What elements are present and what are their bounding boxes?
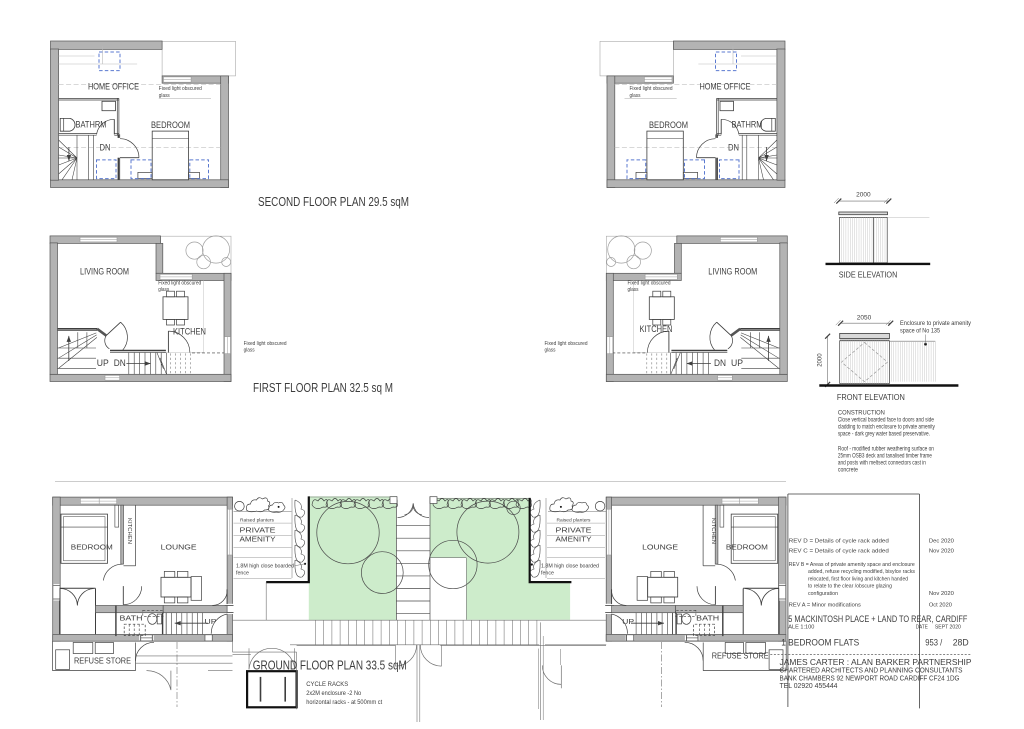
svg-text:space of No 135: space of No 135	[900, 329, 941, 335]
svg-text:Nov 2020: Nov 2020	[929, 549, 954, 555]
svg-text:BATH: BATH	[120, 613, 143, 622]
svg-text:2050: 2050	[857, 315, 872, 322]
svg-text:relocated, first floor living: relocated, first floor living and kitche…	[808, 576, 908, 582]
svg-text:Fixed light obscured: Fixed light obscured	[628, 280, 671, 286]
svg-text:UP: UP	[731, 358, 743, 368]
svg-text:Dec 2020: Dec 2020	[929, 538, 954, 544]
svg-text:HOME OFFICE: HOME OFFICE	[88, 82, 139, 92]
svg-text:Fixed light obscured: Fixed light obscured	[244, 341, 287, 347]
svg-text:REV B = Areas of private ameni: REV B = Areas of private amenity space a…	[789, 562, 915, 568]
svg-text:BEDROOM: BEDROOM	[151, 120, 190, 130]
svg-text:BEDROOM: BEDROOM	[726, 543, 768, 552]
svg-text:Fixed light obscured: Fixed light obscured	[630, 86, 673, 92]
svg-text:to relate to the clear /obscur: to relate to the clear /obscure glazing	[808, 584, 892, 590]
svg-text:BEDROOM: BEDROOM	[71, 543, 113, 552]
svg-text:fence: fence	[236, 571, 249, 577]
svg-text:glass: glass	[545, 348, 556, 354]
svg-text:2000: 2000	[856, 191, 871, 198]
svg-text:Fixed light obscured: Fixed light obscured	[159, 86, 202, 92]
svg-text:ALE 1:100: ALE 1:100	[788, 624, 814, 630]
svg-text:Raised planters: Raised planters	[557, 518, 592, 524]
svg-text:glass: glass	[159, 93, 170, 99]
svg-text:AMENITY: AMENITY	[556, 535, 592, 544]
svg-text:UP: UP	[622, 617, 634, 626]
svg-text:KITCHEN: KITCHEN	[640, 324, 673, 334]
svg-text:LIVING ROOM: LIVING ROOM	[80, 266, 129, 276]
svg-text:Fixed light obscured: Fixed light obscured	[545, 341, 588, 347]
svg-text:UP: UP	[205, 617, 217, 626]
svg-text:2000: 2000	[818, 353, 824, 367]
svg-text:added, refuse recycling modifi: added, refuse recycling modified, bisylc…	[808, 569, 915, 575]
svg-text:REV C = Details of cycle rack: REV C = Details of cycle rack added	[789, 549, 889, 555]
svg-text:2x2M enclosure -2 No: 2x2M enclosure -2 No	[306, 690, 361, 697]
svg-text:1.8M high close boarded: 1.8M high close boarded	[236, 564, 294, 570]
svg-text:CYCLE RACKS: CYCLE RACKS	[306, 681, 348, 688]
svg-text:glass: glass	[628, 287, 639, 293]
svg-text:REV D = Details of cycle rack: REV D = Details of cycle rack added	[789, 538, 889, 544]
svg-text:5 MACKINTOSH PLACE + LAND TO R: 5 MACKINTOSH PLACE + LAND TO REAR, CARDI…	[788, 614, 967, 625]
svg-text:REFUSE STORE: REFUSE STORE	[712, 652, 769, 661]
svg-text:space - dark grey water based: space - dark grey water based preservati…	[838, 431, 930, 438]
svg-text:GROUND FLOOR PLAN 33.5 sqM: GROUND FLOOR PLAN 33.5 sqM	[253, 658, 407, 672]
svg-text:PRIVATE: PRIVATE	[556, 526, 592, 535]
svg-text:AMENITY: AMENITY	[240, 535, 276, 544]
svg-text:fence: fence	[541, 571, 554, 577]
svg-text:Oct 2020: Oct 2020	[929, 602, 952, 608]
svg-text:BEDROOM: BEDROOM	[649, 120, 688, 130]
svg-text:1 BEDROOM FLATS: 1 BEDROOM FLATS	[781, 638, 859, 649]
svg-text:Enclosure to private amenity: Enclosure to private amenity	[900, 321, 971, 327]
svg-text:SECOND FLOOR PLAN 29.5 sqM: SECOND FLOOR PLAN 29.5 sqM	[258, 194, 409, 209]
svg-text:glass: glass	[158, 287, 169, 293]
svg-text:SEPT 2020: SEPT 2020	[935, 624, 961, 630]
svg-text:KITCHEN: KITCHEN	[173, 326, 206, 336]
svg-text:PRIVATE: PRIVATE	[240, 526, 276, 535]
svg-text:BATHRM: BATHRM	[76, 120, 107, 130]
svg-text:DN: DN	[100, 143, 111, 153]
svg-text:1.8M high close boarded: 1.8M high close boarded	[541, 564, 599, 570]
svg-text:Nov 2020: Nov 2020	[929, 591, 954, 597]
svg-text:28D: 28D	[953, 638, 969, 649]
svg-text:configuration: configuration	[808, 591, 838, 597]
svg-text:TEL 02920 455444: TEL 02920 455444	[780, 681, 838, 690]
svg-text:REV A = Minor modifications: REV A = Minor modifications	[789, 602, 861, 608]
svg-text:FRONT ELEVATION: FRONT ELEVATION	[837, 393, 905, 402]
svg-text:SIDE ELEVATION: SIDE ELEVATION	[839, 271, 898, 280]
svg-text:and posts with meltsect conne: and posts with meltsect connectors cast …	[838, 460, 926, 467]
svg-text:glass: glass	[244, 348, 255, 354]
svg-text:DATE: DATE	[916, 624, 929, 630]
svg-text:concrete: concrete	[838, 467, 859, 474]
svg-text:KITCHEN: KITCHEN	[126, 518, 132, 544]
svg-text:cladding to match enclosure to: cladding to match enclosure to private a…	[838, 424, 936, 431]
svg-text:DN: DN	[714, 358, 726, 368]
svg-text:Raised planters: Raised planters	[240, 518, 275, 524]
svg-text:BATH: BATH	[696, 613, 719, 622]
svg-text:BATHRM: BATHRM	[732, 120, 763, 130]
svg-text:glass: glass	[630, 93, 641, 99]
svg-text:25mm OSB3 deck and tanalised t: 25mm OSB3 deck and tanalised timber fram…	[838, 453, 932, 460]
svg-text:LIVING ROOM: LIVING ROOM	[708, 266, 757, 276]
svg-text:DN: DN	[728, 143, 739, 153]
svg-text:Fixed light obscured: Fixed light obscured	[158, 280, 201, 286]
svg-text:FIRST FLOOR PLAN 32.5 sq M: FIRST FLOOR PLAN 32.5 sq M	[253, 380, 393, 395]
svg-text:UP: UP	[97, 358, 109, 368]
svg-text:953 /: 953 /	[925, 638, 942, 649]
svg-text:Close vertical boarded face to: Close vertical boarded face to doors and…	[838, 417, 934, 424]
svg-text:LOUNGE: LOUNGE	[161, 543, 197, 552]
svg-text:horizontal racks - at 500mm ct: horizontal racks - at 500mm ct	[306, 699, 382, 706]
svg-text:Roof - modified rubber weather: Roof - modified rubber weathering surfac…	[838, 446, 934, 453]
svg-text:CONSTRUCTION: CONSTRUCTION	[838, 409, 885, 416]
svg-text:HOME OFFICE: HOME OFFICE	[700, 82, 751, 92]
svg-text:LOUNGE: LOUNGE	[642, 543, 678, 552]
svg-text:REFUSE STORE: REFUSE STORE	[74, 656, 131, 665]
svg-text:DN: DN	[114, 358, 126, 368]
svg-text:KITCHEN: KITCHEN	[710, 518, 716, 544]
